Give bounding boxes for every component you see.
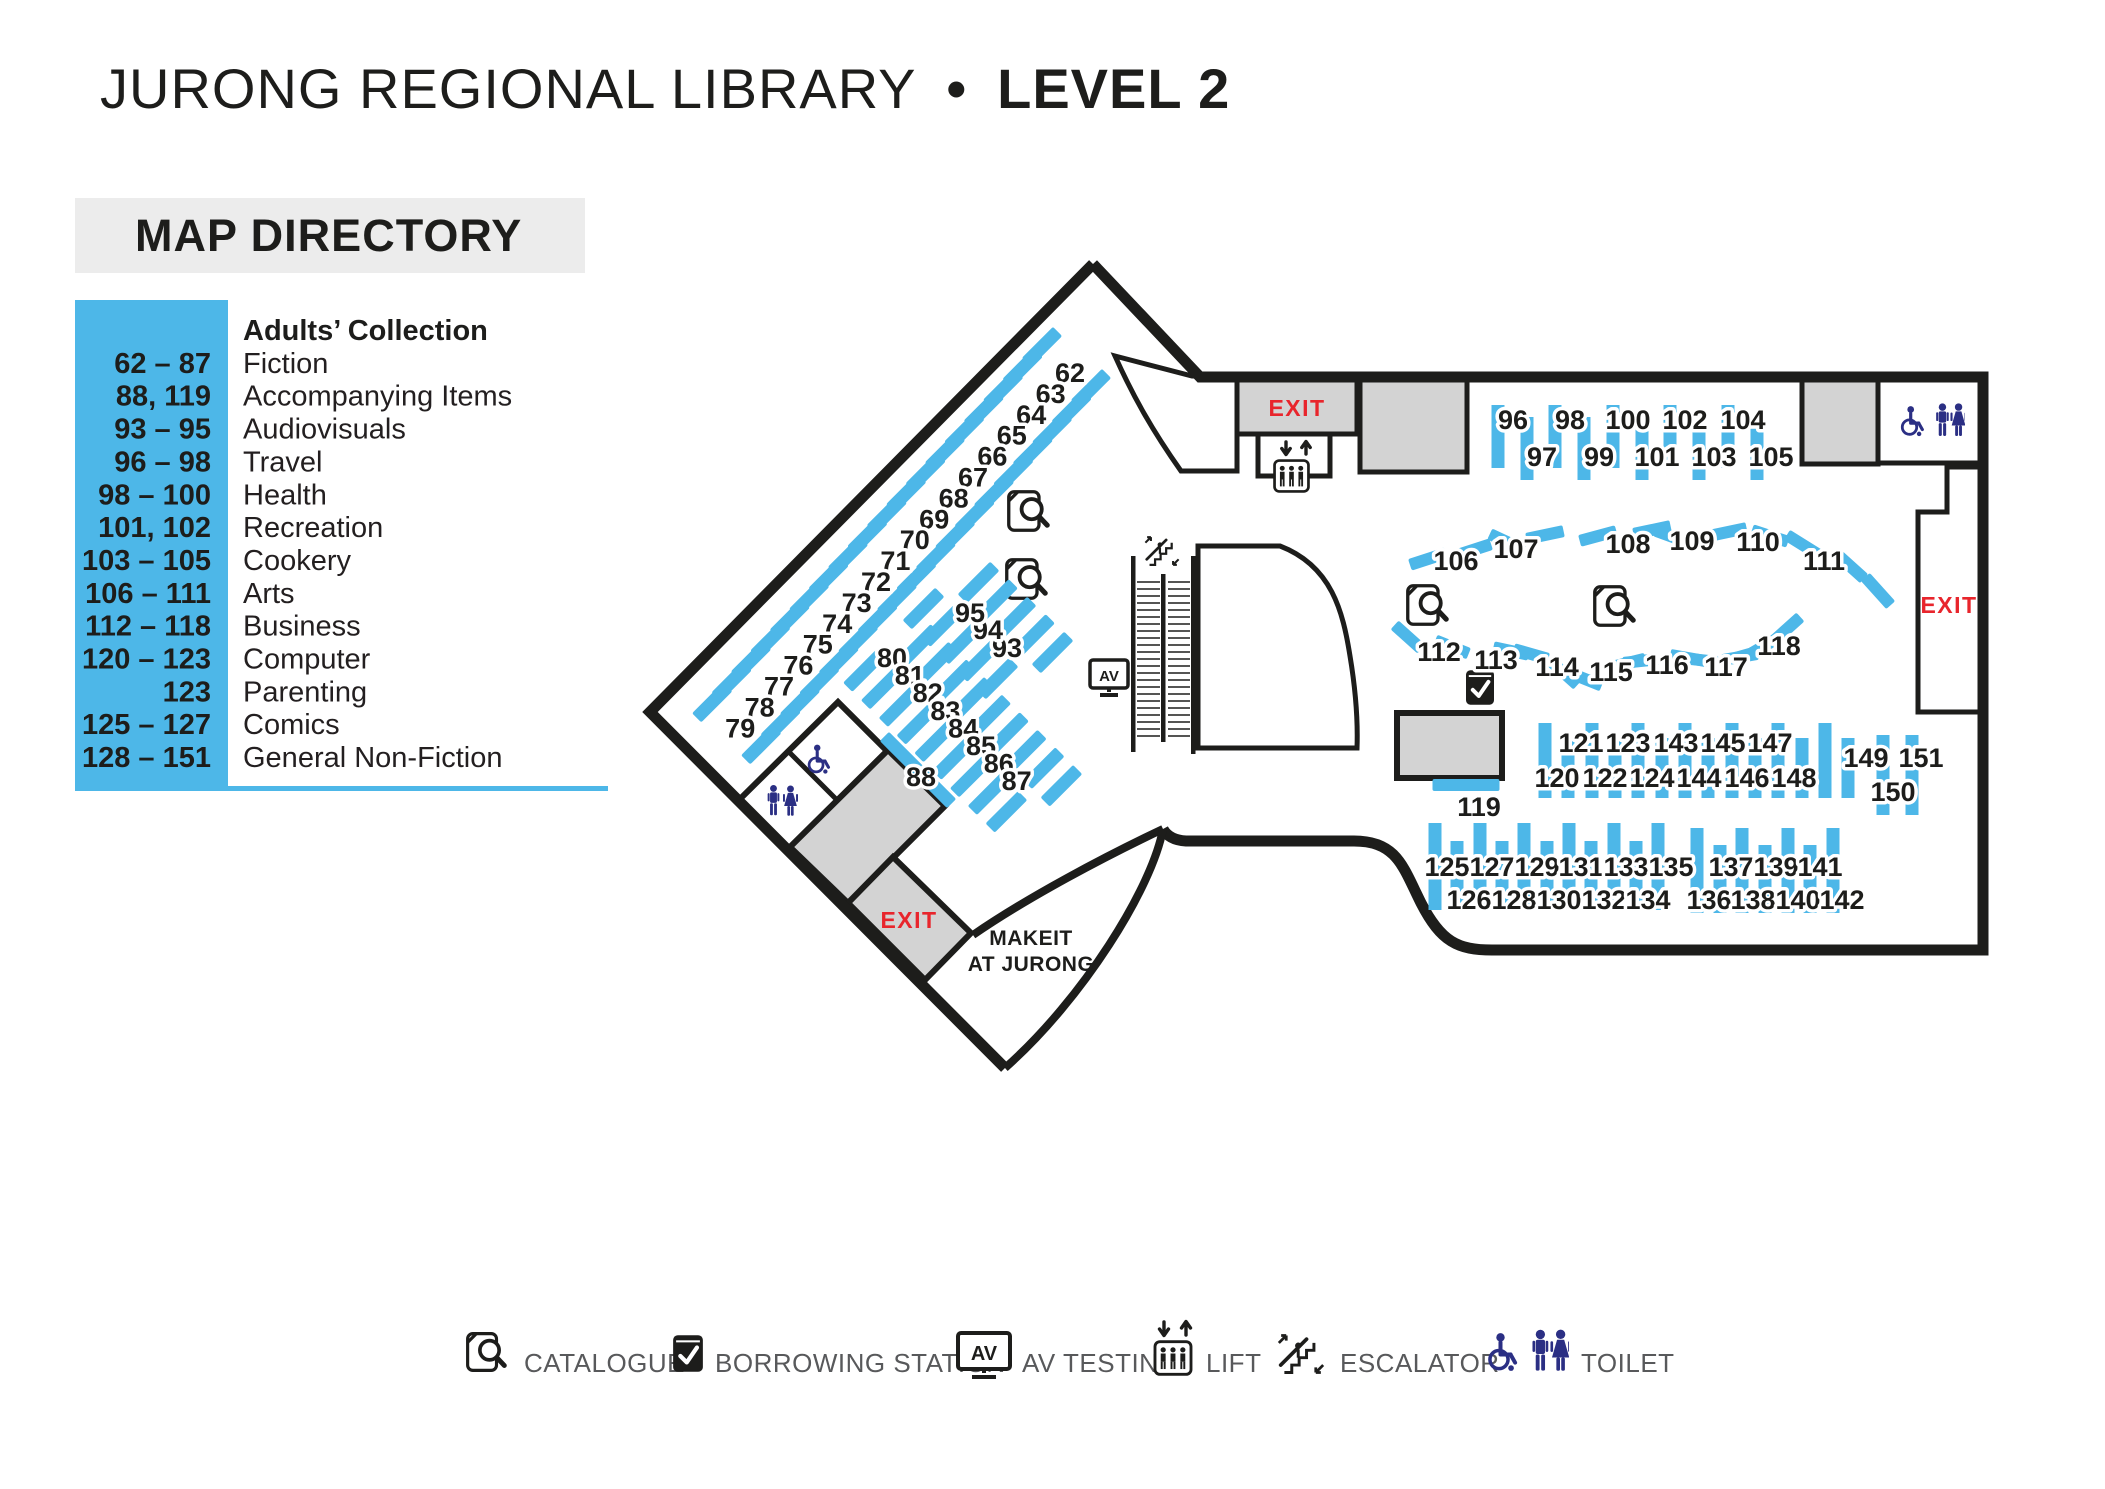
legend-item-lift: LIFT: [1155, 1322, 1261, 1379]
catalogue-icon: [1408, 586, 1447, 625]
shelf-number-label: 150: [1870, 777, 1915, 807]
legend: CATALOGUE BORROWING STATION AV AV TESTIN…: [468, 1322, 1675, 1379]
exit-label-right: EXIT: [1920, 592, 1977, 618]
shelf-number-label: 135: [1648, 852, 1693, 882]
directory-entry-label: Business: [243, 611, 361, 643]
shelf-number-label: 127: [1469, 852, 1514, 882]
directory-entry-range: 96 – 98: [114, 446, 211, 478]
borrowing-station-icon: [673, 1335, 703, 1372]
shelf-number-label: 122: [1582, 763, 1627, 793]
directory-entry-label: Travel: [243, 446, 323, 478]
shelf-number-label: 95: [955, 598, 985, 628]
storage-room-top: [1360, 379, 1467, 472]
directory-entry-label: Accompanying Items: [243, 381, 512, 413]
directory-entry-range: 101, 102: [98, 512, 211, 544]
directory-entry-label: Comics: [243, 709, 340, 741]
directory-section-title: Adults’ Collection: [243, 315, 488, 347]
shelf-number-label: 149: [1843, 743, 1888, 773]
shelf-number-label: 114: [1535, 652, 1579, 682]
exit-label-top: EXIT: [1268, 395, 1325, 421]
shelf-number-label: 112: [1417, 637, 1461, 667]
directory-entry-label: Recreation: [243, 512, 383, 544]
catalogue-icon: [468, 1334, 505, 1371]
library-floor-plan-page: JURONG REGIONAL LIBRARY•LEVEL 2 MAP DIRE…: [0, 0, 2105, 1489]
shelf-number-label: 113: [1474, 645, 1518, 675]
directory-entry-range: 120 – 123: [82, 644, 211, 676]
toilet-room-top-right: [1878, 380, 1981, 463]
directory-entry-range: 112 – 118: [85, 611, 211, 643]
shelf-number-label: 145: [1700, 728, 1745, 758]
escalator: [1131, 537, 1196, 754]
directory-entry-label: Cookery: [243, 545, 351, 577]
directory-entry-range: 88, 119: [116, 381, 211, 413]
shelf-number-label: 146: [1724, 763, 1769, 793]
shelf-number-label: 147: [1747, 728, 1792, 758]
shelf-number-label: 109: [1669, 526, 1714, 556]
svg-text:ESCALATOR: ESCALATOR: [1340, 1348, 1500, 1378]
shelf-number-label: 130: [1536, 885, 1581, 915]
directory-entry-label: Health: [243, 479, 327, 511]
shelf-number-label: 102: [1662, 405, 1707, 435]
shelf-number-label: 120: [1534, 763, 1579, 793]
shelf-number-label: 103: [1691, 442, 1736, 472]
shelf-number-label: 140: [1775, 885, 1820, 915]
legend-item-catalogue: CATALOGUE: [468, 1334, 685, 1378]
directory-entry-range: 62 – 87: [114, 348, 211, 380]
floor-plan: AV EXIT EXIT EXIT MAKEIT AT JURONG: [650, 264, 1983, 1068]
shelf-number-label: 143: [1653, 728, 1698, 758]
shelf-number-label: 128: [1491, 885, 1536, 915]
directory-entry-range: 125 – 127: [82, 709, 211, 741]
shelf-number-label: 79: [725, 713, 755, 743]
directory-entry-range: 128 – 151: [82, 742, 211, 774]
makeit-boundary-upper: [973, 829, 1163, 935]
catalogue-icon: [1595, 587, 1634, 626]
directory-underline: [75, 786, 608, 791]
shelf-number-label: 100: [1605, 405, 1650, 435]
catalogue-icon: [1009, 492, 1048, 531]
outer-wall-right: [1093, 264, 1983, 950]
escalator-icon: [1279, 1336, 1323, 1373]
shelf-number-label: 129: [1514, 852, 1559, 882]
makeit-label-1: MAKEIT: [989, 927, 1073, 950]
escalator-icon: [1145, 537, 1178, 565]
av-testing-icon: AV: [1090, 660, 1128, 695]
toilet-icon: [1490, 1330, 1571, 1371]
shelf-number-label: 111: [1803, 546, 1845, 576]
map-directory-panel: MAP DIRECTORY Adults’ Collection62 – 87F…: [75, 198, 608, 791]
shelf-number-label: 110: [1736, 527, 1780, 557]
shelf-number-label: 126: [1446, 885, 1491, 915]
shelf-number-label: 96: [1498, 405, 1528, 435]
shelf-number-label: 115: [1589, 657, 1633, 687]
borrowing-station-icon: [1466, 670, 1494, 704]
directory-entry-range: 98 – 100: [98, 479, 211, 511]
shelf-number-label: 119: [1457, 792, 1501, 822]
shelf-number-label: 138: [1730, 885, 1775, 915]
shelf-number-label: 108: [1605, 529, 1650, 559]
shelf-number-label: 99: [1584, 442, 1614, 472]
directory-entry-label: Audiovisuals: [243, 414, 406, 446]
av-testing-icon: AV: [958, 1333, 1010, 1377]
shelf-number-label: 98: [1555, 405, 1585, 435]
shelf-number-label: 97: [1527, 442, 1557, 472]
directory-entry-label: Fiction: [243, 348, 328, 380]
svg-text:AV: AV: [1099, 668, 1119, 685]
directory-entry-label: General Non-Fiction: [243, 742, 503, 774]
shelf-number-label: 88: [906, 762, 936, 792]
svg-text:LIFT: LIFT: [1206, 1348, 1261, 1378]
shelf-number-label: 134: [1625, 885, 1670, 915]
shelf-number-label: 87: [1002, 766, 1032, 796]
shelf-number-label: 116: [1645, 650, 1689, 680]
shelf-number-label: 123: [1605, 728, 1650, 758]
shelf-number-label: 107: [1493, 534, 1538, 564]
piano-room-center: [1198, 546, 1357, 748]
gray-room-top-right: [1802, 380, 1878, 464]
svg-text:AV: AV: [971, 1343, 998, 1365]
shelf-bar: [1433, 779, 1500, 791]
shelf-number-label: 141: [1797, 852, 1842, 882]
shelf-number-label: 124: [1629, 763, 1674, 793]
shelf-number-label: 117: [1704, 652, 1748, 682]
shelf-number-label: 132: [1581, 885, 1626, 915]
shelf-number-label: 151: [1898, 743, 1943, 773]
shelf-number-label: 125: [1424, 852, 1469, 882]
directory-entry-range: 93 – 95: [114, 414, 211, 446]
shelf-number-label: 121: [1558, 728, 1603, 758]
legend-item-borrowing-station: BORROWING STATION: [673, 1335, 1006, 1378]
shelf-number-label: 142: [1819, 885, 1864, 915]
shelf-number-label: 148: [1771, 763, 1816, 793]
shelf-number-label: 136: [1686, 885, 1731, 915]
shelf-number-label: 133: [1603, 852, 1648, 882]
directory-entry-label: Computer: [243, 644, 371, 676]
svg-text:TOILET: TOILET: [1581, 1348, 1675, 1378]
lift-icon: [1155, 1342, 1191, 1375]
page-title: JURONG REGIONAL LIBRARY•LEVEL 2: [100, 57, 1230, 120]
directory-entry-range: 103 – 105: [82, 545, 211, 577]
directory-entry-range: 123: [163, 676, 211, 708]
exit-label-bottom: EXIT: [880, 907, 937, 933]
legend-item-escalator: ESCALATOR: [1279, 1336, 1500, 1378]
shelf-number-label: 144: [1676, 763, 1721, 793]
directory-entry-range: 106 – 111: [85, 578, 211, 610]
directory-entry-label: Parenting: [243, 676, 367, 708]
shelf-number-label: 131: [1558, 852, 1603, 882]
lift-icon: [1275, 461, 1309, 492]
shelf-number-label: 101: [1634, 442, 1679, 472]
makeit-label-2: AT JURONG: [968, 953, 1095, 976]
directory-heading: MAP DIRECTORY: [135, 210, 522, 261]
shelf-bar: [1819, 723, 1832, 798]
shelf-number-label: 105: [1748, 442, 1793, 472]
shelf-number-label: 104: [1720, 405, 1765, 435]
shelf-number-label: 137: [1708, 852, 1753, 882]
legend-item-toilet: TOILET: [1490, 1330, 1675, 1378]
directory-entry-label: Arts: [243, 578, 295, 610]
lift-arrows-icon: [1160, 1322, 1191, 1336]
shelf-number-label: 118: [1757, 631, 1801, 661]
shelf-number-label: 106: [1433, 546, 1478, 576]
svg-text:CATALOGUE: CATALOGUE: [524, 1348, 685, 1378]
shelf-bar: [1861, 573, 1895, 609]
shelf-number-label: 139: [1753, 852, 1798, 882]
exit-room-right: [1918, 467, 1981, 712]
gray-room-119: [1397, 713, 1502, 778]
